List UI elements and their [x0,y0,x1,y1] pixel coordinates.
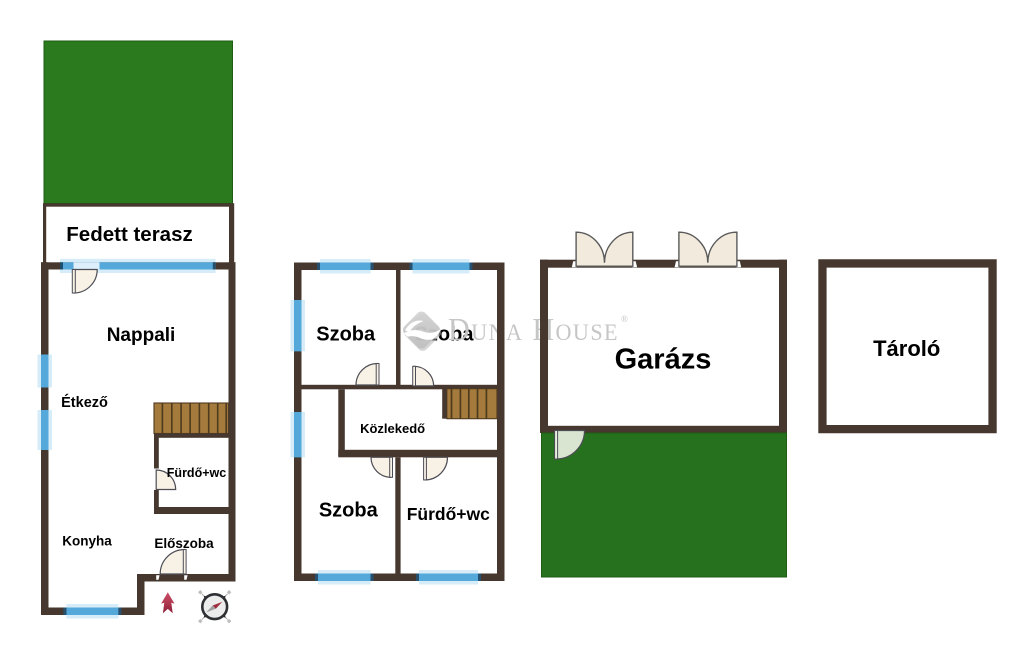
svg-text:Közlekedő: Közlekedő [360,421,425,436]
svg-text:Tároló: Tároló [873,336,940,361]
svg-text:Garázs: Garázs [615,344,712,376]
svg-text:Szoba: Szoba [316,324,376,346]
svg-text:Előszoba: Előszoba [154,536,214,551]
svg-text:Konyha: Konyha [62,534,112,549]
svg-text:Fedett terasz: Fedett terasz [66,223,192,246]
svg-text:Nappali: Nappali [107,325,176,346]
svg-text:Fürdő+wc: Fürdő+wc [167,466,226,480]
svg-text:Étkező: Étkező [61,394,108,411]
svg-text:Szoba: Szoba [319,500,379,522]
svg-text:®: ® [621,314,628,324]
svg-text:Fürdő+wc: Fürdő+wc [407,504,490,524]
